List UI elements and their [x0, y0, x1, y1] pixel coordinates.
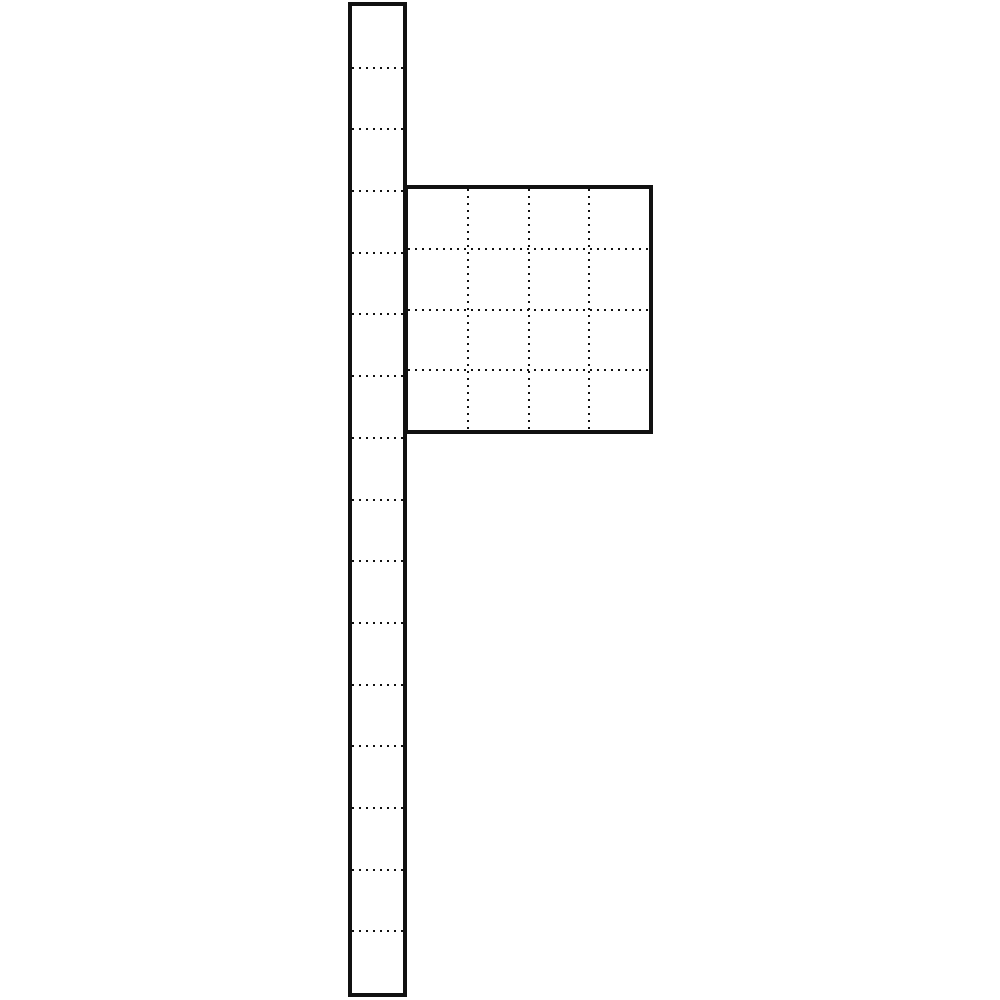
panel-grid-horizontal-line — [408, 369, 649, 371]
panel-grid-horizontal-line — [408, 309, 649, 311]
panel-shape — [404, 185, 653, 434]
post-division-line — [352, 190, 403, 192]
post-division-line — [352, 745, 403, 747]
post-division-line — [352, 869, 403, 871]
drawing-canvas — [0, 0, 1000, 1000]
post-division-line — [352, 807, 403, 809]
post-division-line — [352, 128, 403, 130]
panel-grid-horizontal-line — [408, 248, 649, 250]
post-division-line — [352, 499, 403, 501]
post-division-line — [352, 560, 403, 562]
post-division-line — [352, 622, 403, 624]
post-division-line — [352, 437, 403, 439]
post-shape — [348, 2, 407, 997]
post-division-line — [352, 930, 403, 932]
post-division-line — [352, 313, 403, 315]
post-division-line — [352, 375, 403, 377]
post-division-line — [352, 67, 403, 69]
post-division-line — [352, 252, 403, 254]
post-division-line — [352, 684, 403, 686]
